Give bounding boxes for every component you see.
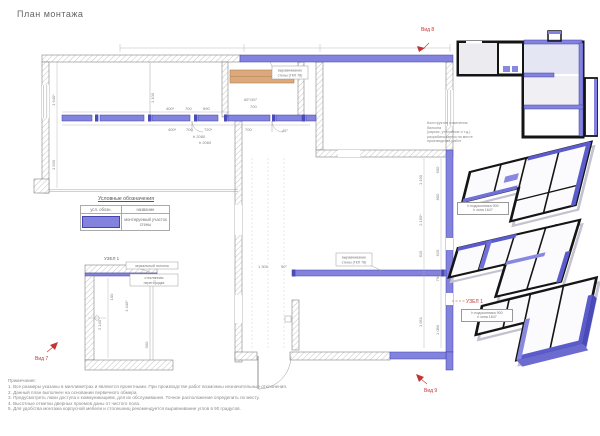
dim-label: 700 bbox=[186, 127, 193, 132]
callout-text: зеркальный потолок bbox=[135, 264, 169, 268]
detail-uzel1: УЗЕЛ 1 зеркальный потолок стеклянная пер… bbox=[85, 256, 178, 370]
view8-arrow-icon bbox=[417, 46, 425, 52]
dim-label: 700 bbox=[250, 104, 257, 109]
legend-row-name: монтируемый участок стены bbox=[122, 214, 170, 231]
dim-label: 1 951 bbox=[418, 316, 423, 327]
dim-label: 1 300 bbox=[258, 264, 269, 269]
dim-label: 2 140 bbox=[97, 319, 102, 330]
detail-callout-partition: стеклянная перегородка bbox=[130, 274, 178, 286]
dim-label: 720* bbox=[204, 127, 213, 132]
dim-label: 1 100 bbox=[150, 92, 155, 103]
dim-label: 65°/45° bbox=[244, 97, 258, 102]
dim-label: h 2060 bbox=[199, 140, 212, 145]
note-item: 5. Для удобства монтажа корпусной мебели… bbox=[8, 406, 360, 411]
dim-label: 1 190 bbox=[418, 174, 423, 185]
dim-label: 400* bbox=[166, 106, 175, 111]
balcony-construction-note: Конструктив изменения балкона (каркас, у… bbox=[427, 121, 479, 144]
construction-lines bbox=[252, 158, 284, 348]
dim-label: 700 bbox=[435, 274, 440, 281]
callout-text: стеклянная bbox=[145, 276, 164, 280]
callout-line: h окна 1647 bbox=[464, 315, 510, 319]
dim-label: 1 440* bbox=[124, 300, 129, 312]
dim-label: 400* bbox=[168, 127, 177, 132]
dim-label: 615 bbox=[418, 250, 423, 257]
view8-arrow-label: Вид 8 bbox=[421, 27, 434, 33]
callout-text: перегородка bbox=[144, 281, 165, 285]
dim-label: 2 160* bbox=[418, 214, 423, 226]
dim-label: 800 bbox=[435, 193, 440, 200]
note-line: производства работ bbox=[427, 139, 479, 144]
legend-header-name: название bbox=[122, 206, 170, 214]
dim-label: 1 940* bbox=[51, 94, 56, 106]
drawing-sheet: План монтажа bbox=[0, 0, 600, 436]
dim-label: 690 bbox=[203, 106, 210, 111]
dim-label: 1 530 bbox=[51, 159, 56, 170]
dim-label: 100 bbox=[109, 293, 114, 300]
notes-block: Примечания: 1. Все размеры указаны в мил… bbox=[8, 378, 360, 411]
window-height-callout-1: h подоконника 900 h окна 1647 bbox=[457, 202, 509, 215]
dim-label: 615 bbox=[435, 249, 440, 256]
wall-stub-handle bbox=[285, 316, 291, 322]
callout-line: h окна 1647 bbox=[460, 208, 506, 212]
legend-title: Условные обозначения bbox=[80, 196, 172, 202]
callout-text: выравнивание bbox=[278, 69, 302, 73]
mounted-wall-swatch bbox=[82, 216, 120, 228]
dim-label: h 2080 bbox=[193, 134, 206, 139]
window-height-callout-2: h подоконника 900 h окна 1647 bbox=[461, 309, 513, 322]
view9-arrow-label: Вид 9 bbox=[424, 388, 437, 394]
legend-swatch-cell bbox=[81, 214, 122, 231]
view-3d-axon9 bbox=[466, 276, 600, 381]
legend: Условные обозначения усл. обозн. названи… bbox=[80, 196, 172, 231]
detail-title: УЗЕЛ 1 bbox=[104, 256, 120, 261]
view7-arrow-label: Вид 7 bbox=[35, 356, 48, 362]
callout-text: стены (ГКЛ 78) bbox=[342, 261, 367, 265]
legend-header-symbol: усл. обозн. bbox=[81, 206, 122, 214]
dim-label: 900 bbox=[144, 341, 149, 348]
legend-table: усл. обозн. название монтируемый участок… bbox=[80, 205, 170, 231]
dim-label: 45° bbox=[282, 128, 288, 133]
callout-text: выравнивание bbox=[342, 256, 366, 260]
callout-text: стены (ГКЛ 78) bbox=[278, 74, 303, 78]
dim-label: 1 080 bbox=[435, 324, 440, 335]
dim-label: 90° bbox=[281, 264, 287, 269]
dim-label: 600 bbox=[435, 166, 440, 173]
notes-heading: Примечания: bbox=[8, 378, 360, 383]
dim-label: 700 bbox=[245, 127, 252, 132]
note-line: Конструктив изменения балкона bbox=[427, 121, 479, 130]
dim-label: 700 bbox=[185, 106, 192, 111]
uzel1-reference-label: УЗЕЛ 1 bbox=[466, 299, 483, 305]
callout-wall-align-mid: выравнивание стены (ГКЛ 78) bbox=[336, 253, 384, 272]
